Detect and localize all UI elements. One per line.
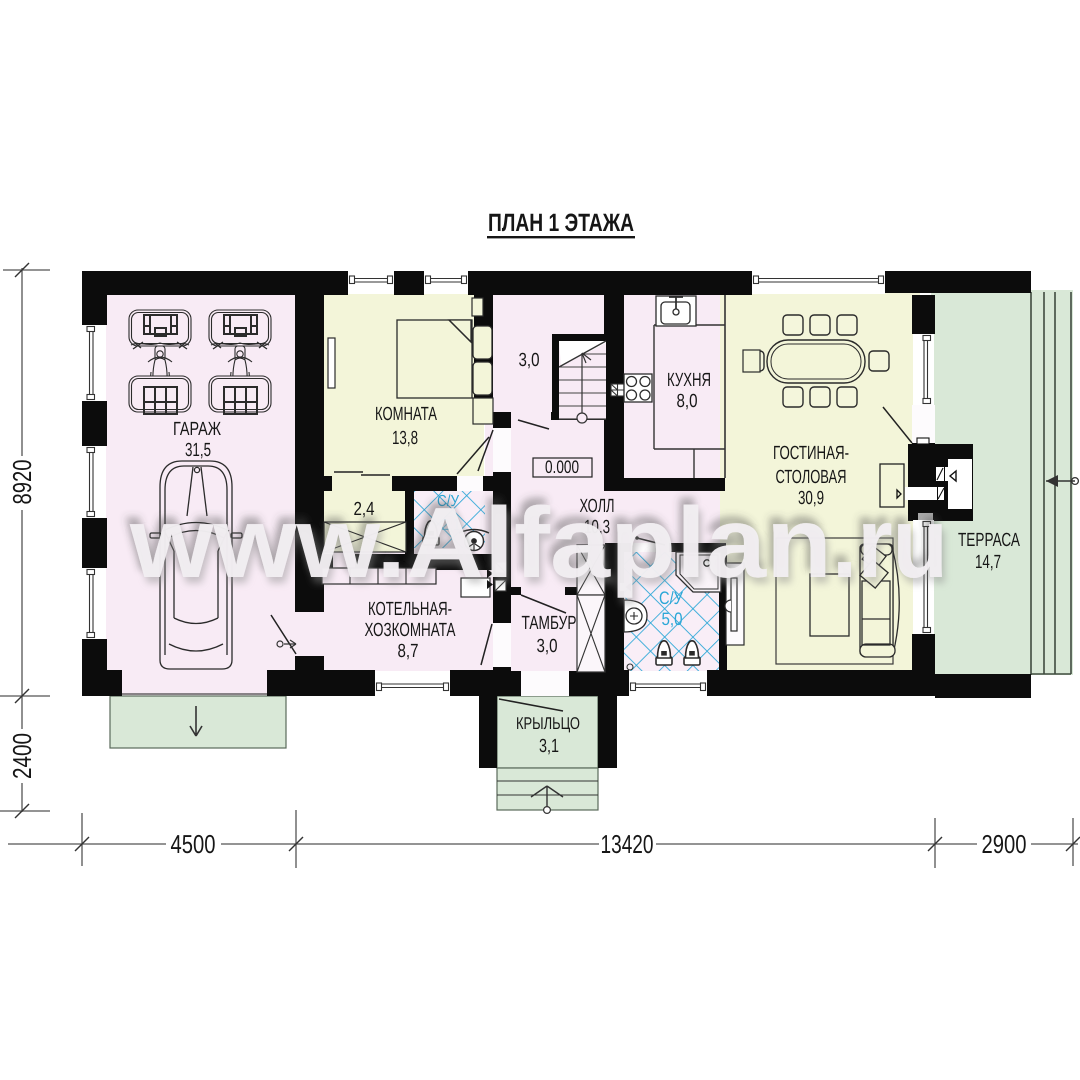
svg-text:СТОЛОВАЯ: СТОЛОВАЯ — [776, 467, 847, 488]
svg-text:8,0: 8,0 — [677, 391, 698, 412]
svg-text:4500: 4500 — [171, 829, 216, 859]
svg-text:ХОЗКОМНАТА: ХОЗКОМНАТА — [365, 620, 456, 641]
svg-text:0.000: 0.000 — [545, 457, 579, 477]
svg-text:3,1: 3,1 — [539, 736, 559, 757]
svg-text:КУХНЯ: КУХНЯ — [667, 370, 711, 391]
svg-text:ГОСТИНАЯ-: ГОСТИНАЯ- — [773, 443, 849, 464]
svg-text:3,0: 3,0 — [519, 350, 540, 371]
svg-text:2400: 2400 — [7, 733, 37, 779]
svg-text:8920: 8920 — [7, 460, 37, 505]
svg-text:КРЫЛЬЦО: КРЫЛЬЦО — [516, 714, 580, 733]
svg-text:ГАРАЖ: ГАРАЖ — [173, 419, 221, 440]
svg-text:КОТЕЛЬНАЯ-: КОТЕЛЬНАЯ- — [368, 599, 452, 620]
svg-text:ПЛАН 1 ЭТАЖА: ПЛАН 1 ЭТАЖА — [488, 209, 634, 237]
svg-text:14,7: 14,7 — [975, 552, 1001, 573]
svg-text:5,0: 5,0 — [662, 609, 683, 629]
svg-text:КОМНАТА: КОМНАТА — [375, 404, 437, 425]
svg-text:ТЕРРАСА: ТЕРРАСА — [958, 530, 1020, 551]
svg-text:8,7: 8,7 — [398, 641, 419, 662]
svg-text:31,5: 31,5 — [185, 440, 211, 461]
svg-text:3,0: 3,0 — [537, 636, 558, 657]
svg-text:13420: 13420 — [601, 829, 654, 859]
svg-text:2900: 2900 — [982, 829, 1027, 859]
svg-text:www.Alfaplan.ru: www.Alfaplan.ru — [129, 487, 948, 599]
svg-text:13,8: 13,8 — [392, 428, 418, 449]
svg-text:ТАМБУР: ТАМБУР — [522, 613, 577, 634]
